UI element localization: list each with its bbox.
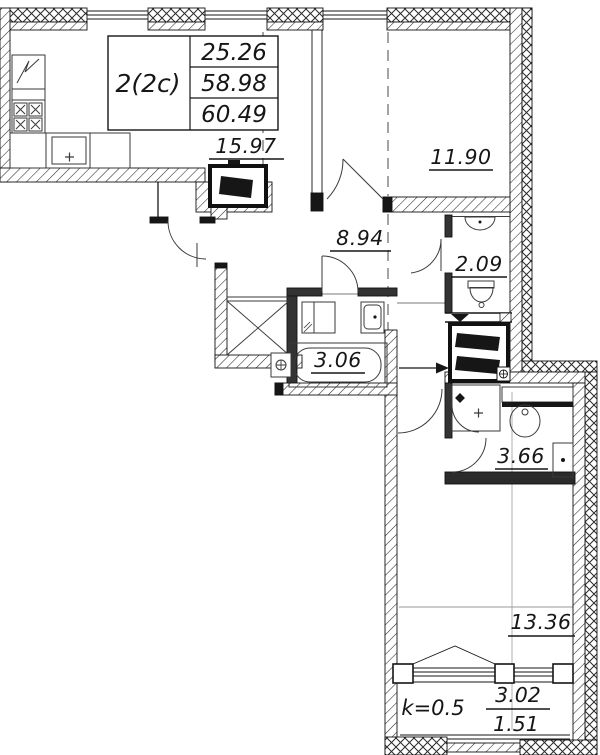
wc-sink-icon bbox=[465, 217, 495, 230]
wardrobe-cross bbox=[227, 301, 289, 355]
step-wall-outer bbox=[522, 361, 597, 372]
bathroom-small-area-label: 3.06 bbox=[314, 348, 362, 372]
balcony-bottom-wall bbox=[385, 737, 597, 755]
entry-jamb-left bbox=[150, 217, 168, 223]
top-wall-pier bbox=[267, 8, 323, 22]
bathroom-small-bottom-wall-cap bbox=[275, 383, 283, 395]
balcony-corner-right bbox=[520, 740, 597, 755]
bedroom-partition-cap bbox=[311, 193, 323, 211]
bedroom-partition-wall bbox=[312, 30, 322, 197]
area-total-value: 58.98 bbox=[201, 71, 267, 97]
burner bbox=[14, 103, 42, 131]
balcony-door-window bbox=[393, 646, 573, 683]
stove-icon bbox=[12, 100, 45, 133]
corridor-door bbox=[398, 389, 442, 433]
balcony-parapet bbox=[447, 743, 527, 752]
wc-toilet-icon bbox=[468, 281, 494, 308]
bathroom-bottom-wall bbox=[445, 472, 575, 484]
drain-unit bbox=[271, 353, 291, 377]
area-total-summer-value: 60.49 bbox=[201, 102, 267, 128]
bedroom-area-label: 11.90 bbox=[430, 145, 491, 169]
wc-left-wall-lower bbox=[445, 273, 452, 313]
bath-shelf bbox=[502, 387, 573, 407]
wc-door bbox=[411, 239, 441, 273]
right-outer-wall-lower-outer bbox=[585, 372, 597, 755]
balcony-coefficient-label: k=0.5 bbox=[401, 696, 464, 720]
bedroom-door bbox=[327, 159, 383, 199]
bathroom-sink-icon bbox=[361, 302, 384, 333]
floor-plan-svg: 2(2c) 25.26 58.98 60.49 15.97 11.90 8.94… bbox=[0, 0, 600, 755]
right-outer-wall-upper-inner bbox=[510, 8, 522, 372]
title-block: 2(2c) 25.26 58.98 60.49 bbox=[108, 36, 278, 130]
bedroom-bottom-wall-cap bbox=[383, 197, 392, 212]
vent-arrow bbox=[451, 314, 469, 322]
bathroom-small-door bbox=[322, 256, 358, 292]
top-wall-pier-inner bbox=[267, 22, 323, 30]
wardrobe-left-wall bbox=[215, 267, 227, 362]
kitchen-living-area-label: 15.97 bbox=[215, 134, 276, 158]
bathroom-left-wall bbox=[445, 383, 452, 438]
wc-area-label: 2.09 bbox=[455, 252, 503, 276]
window-post bbox=[393, 664, 413, 683]
entry-door bbox=[168, 221, 206, 267]
bedroom-bottom-wall bbox=[383, 197, 510, 212]
left-outer-wall bbox=[0, 8, 10, 182]
right-outer-wall-upper-outer bbox=[522, 8, 532, 372]
washing-machine-icon bbox=[302, 302, 335, 333]
entry-jamb-right bbox=[200, 217, 215, 223]
duct-box bbox=[500, 313, 511, 322]
area-living-value: 25.26 bbox=[201, 40, 267, 66]
kitchen-bottom-wall bbox=[0, 168, 205, 182]
entrance-arrow bbox=[399, 363, 449, 374]
window-opening-lines bbox=[413, 646, 495, 664]
right-outer-wall-lower-inner bbox=[573, 383, 585, 755]
bathroom-small-top-wall-left bbox=[287, 288, 322, 296]
top-wall-pier bbox=[8, 8, 87, 22]
kitchen-window-2 bbox=[205, 11, 267, 19]
window-post bbox=[553, 664, 573, 683]
wardrobe-wall-cap bbox=[215, 263, 227, 268]
vent-shaft-wc bbox=[445, 313, 512, 381]
bathroom-door bbox=[452, 438, 486, 472]
balcony-labels: k=0.5 3.02 1.51 bbox=[401, 683, 550, 736]
bathroom-small-top-wall-right bbox=[358, 288, 397, 296]
vent-shaft-kitchen bbox=[210, 160, 266, 206]
window-post bbox=[495, 664, 514, 683]
kitchen-counter bbox=[10, 133, 130, 168]
wc-left-wall-upper bbox=[445, 215, 452, 237]
refrigerator-icon bbox=[12, 55, 45, 100]
floor-plan: 2(2c) 25.26 58.98 60.49 15.97 11.90 8.94… bbox=[0, 0, 600, 755]
balcony-area-full-label: 3.02 bbox=[495, 683, 541, 707]
balcony-corner-left bbox=[385, 737, 447, 755]
bathroom-small-bottom-wall bbox=[275, 383, 397, 395]
wardrobe bbox=[227, 297, 289, 355]
bedroom-window bbox=[323, 11, 387, 19]
bathroom-area-label: 3.66 bbox=[497, 444, 545, 468]
top-wall-pier-inner bbox=[148, 22, 205, 30]
apartment-type-label: 2(2c) bbox=[115, 69, 180, 98]
balcony-area-reduced-label: 1.51 bbox=[493, 712, 539, 736]
hallway-area-label: 8.94 bbox=[336, 226, 384, 250]
kitchen-sink-icon bbox=[52, 137, 86, 164]
shower-handle bbox=[455, 393, 465, 403]
shower-icon bbox=[452, 385, 500, 432]
kitchen-window-1 bbox=[87, 11, 148, 19]
living-room-area-label: 13.36 bbox=[510, 610, 571, 634]
top-wall-pier-inner bbox=[8, 22, 87, 30]
top-wall-pier bbox=[148, 8, 205, 22]
bathroom-basin-icon bbox=[510, 405, 540, 437]
top-wall-pier-inner bbox=[387, 22, 510, 30]
